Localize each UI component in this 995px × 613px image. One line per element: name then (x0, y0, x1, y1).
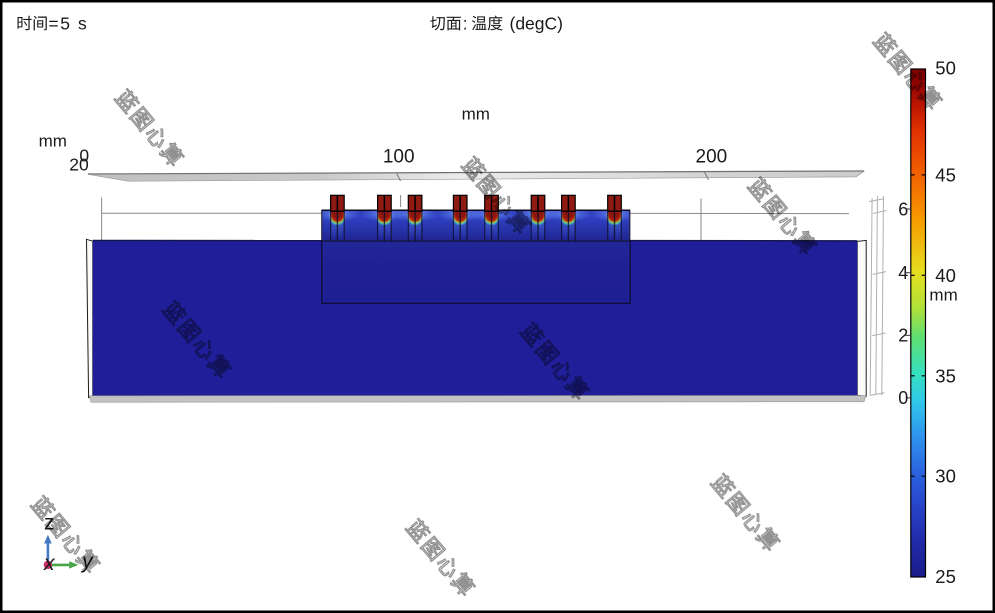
svg-text:40: 40 (935, 265, 956, 286)
svg-text:(degC): (degC) (510, 14, 564, 34)
svg-text:35: 35 (935, 365, 956, 386)
svg-text:25: 25 (935, 566, 956, 587)
svg-text::: : (463, 14, 468, 34)
svg-text:30: 30 (935, 466, 956, 487)
svg-text:50: 50 (935, 57, 956, 78)
svg-text:x: x (43, 552, 56, 575)
svg-text:mm: mm (39, 131, 67, 150)
svg-text:=5 s: =5 s (48, 14, 88, 34)
svg-text:mm: mm (462, 104, 490, 123)
svg-text:100: 100 (383, 146, 415, 167)
svg-text:45: 45 (935, 164, 956, 185)
svg-text:mm: mm (929, 286, 957, 305)
svg-text:20: 20 (69, 154, 89, 174)
svg-text:200: 200 (696, 146, 728, 167)
